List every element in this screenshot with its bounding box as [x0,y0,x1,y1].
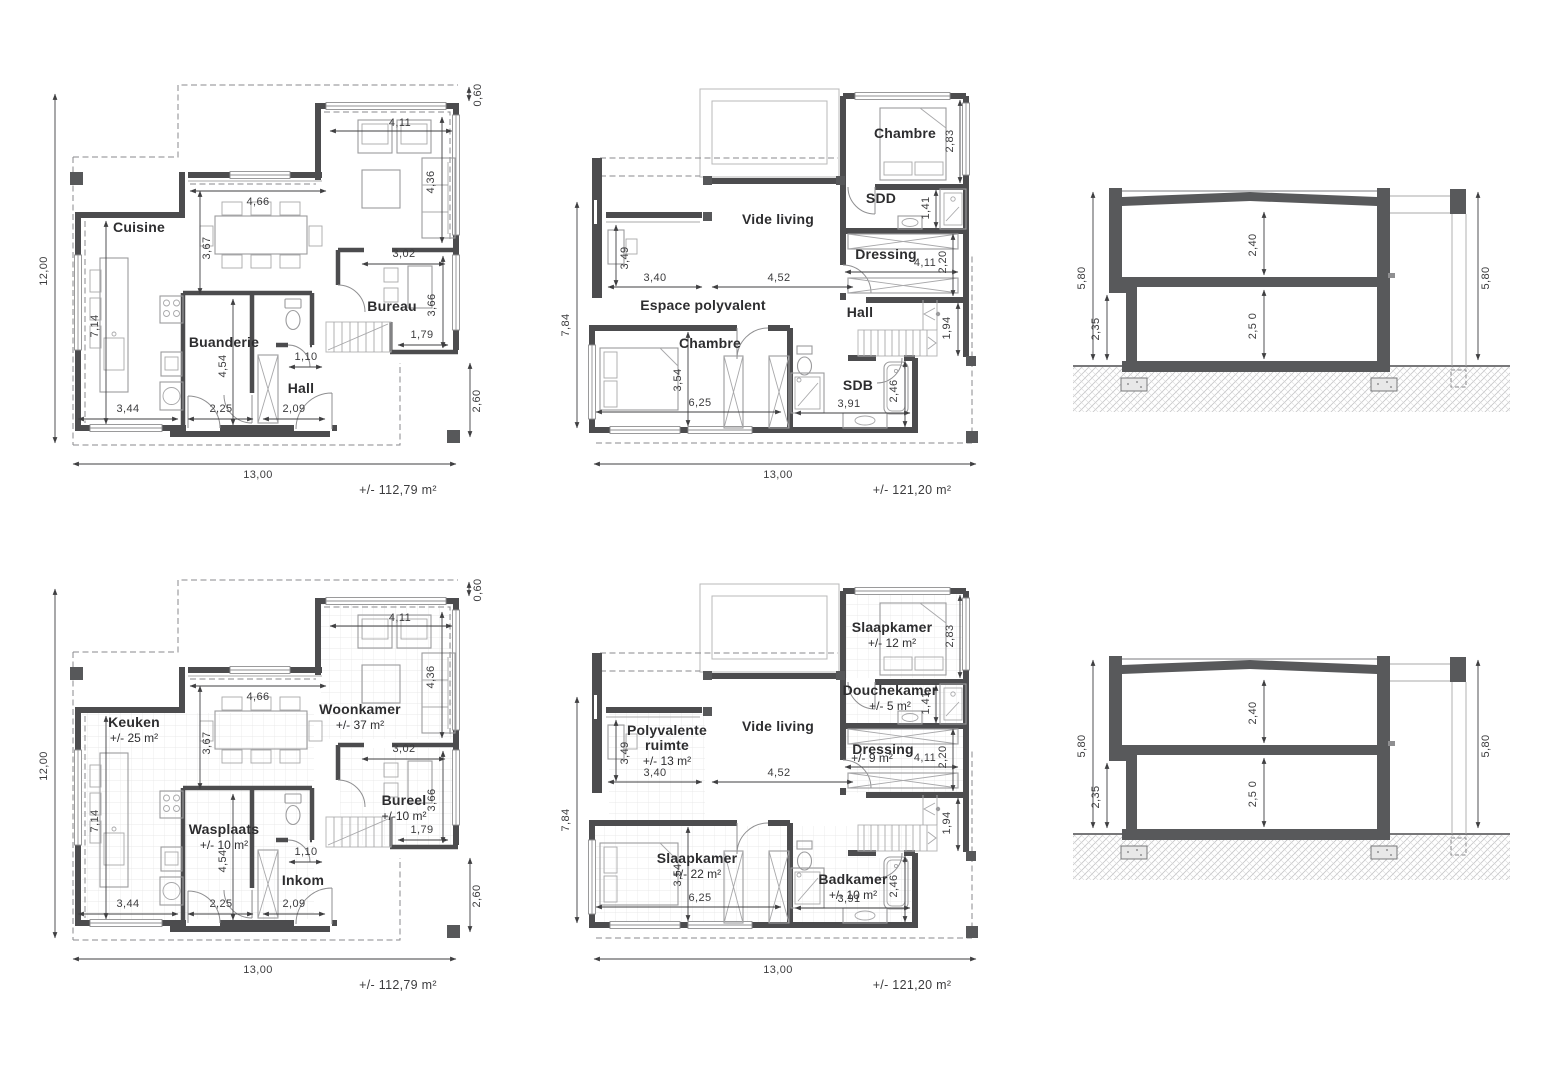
room-label-chambre-1: Chambre [874,125,936,141]
room-label-espace-polyvalent: Espace polyvalent [640,297,766,313]
room-label-dressing: Dressing [855,246,917,262]
section-drawing-top [1073,188,1510,412]
room-area-woonkamer: +/- 37 m² [336,718,384,732]
room-area-slaapkamer-1: +/- 12 m² [868,636,916,650]
upper-floor-plan-french: Chambre SDD Dressing Vide living Espace … [560,89,978,497]
room-label-buanderie: Buanderie [189,334,259,350]
room-area-bureel: +/-10 m² [381,809,426,823]
room-label-bureau: Bureau [367,298,416,314]
room-area-keuken: +/- 25 m² [110,731,158,745]
room-area-wasplaats: +/- 10 m² [200,838,248,852]
architectural-plan-sheet: 12,00 0,60 4,11 4,36 4,66 3,67 3,02 3,66… [0,0,1550,1080]
room-label-sdd: SDD [866,190,896,206]
room-area-douchekamer: +/- 5 m² [869,699,911,713]
room-label-hall: Hall [847,304,873,320]
room-area-polyvalente: +/- 13 m² [643,754,691,768]
room-label-sdb: SDB [843,377,873,393]
room-area-badkamer: +/- 10 m² [829,888,877,902]
section-drawing-bottom [1073,656,1510,880]
room-label-badkamer: Badkamer [818,871,888,887]
room-label-wasplaats: Wasplaats [189,821,260,837]
room-label-polyvalente-2: ruimte [645,737,689,753]
room-label-douchekamer: Douchekamer [843,682,938,698]
room-label-chambre-2: Chambre [679,335,741,351]
room-label-polyvalente-1: Polyvalente [627,722,707,738]
ground-floor-plan-dutch: Keuken +/- 25 m² Woonkamer +/- 37 m² Was… [38,578,484,992]
room-label-hall: Hall [288,380,314,396]
room-label-slaapkamer-1: Slaapkamer [852,619,933,635]
room-label-bureel: Bureel [382,792,427,808]
room-label-woonkamer: Woonkamer [319,701,401,717]
room-label-keuken: Keuken [108,714,160,730]
plan-drawing: 12,00 0,60 4,11 4,36 4,66 3,67 3,02 3,66… [0,0,1550,1080]
room-area-dressing: +/- 9 m² [851,751,893,765]
room-label-vide-living: Vide living [742,718,814,734]
room-label-inkom: Inkom [282,872,324,888]
room-label-slaapkamer-2: Slaapkamer [657,850,738,866]
room-label-cuisine: Cuisine [113,219,165,235]
tile-grid [82,604,454,921]
room-area-slaapkamer-2: +/- 22 m² [673,867,721,881]
upper-floor-plan-dutch: Slaapkamer +/- 12 m² Douchekamer +/- 5 m… [560,584,978,992]
ground-floor-plan-french: Cuisine Buanderie Hall Bureau [38,83,484,497]
room-label-vide-living: Vide living [742,211,814,227]
